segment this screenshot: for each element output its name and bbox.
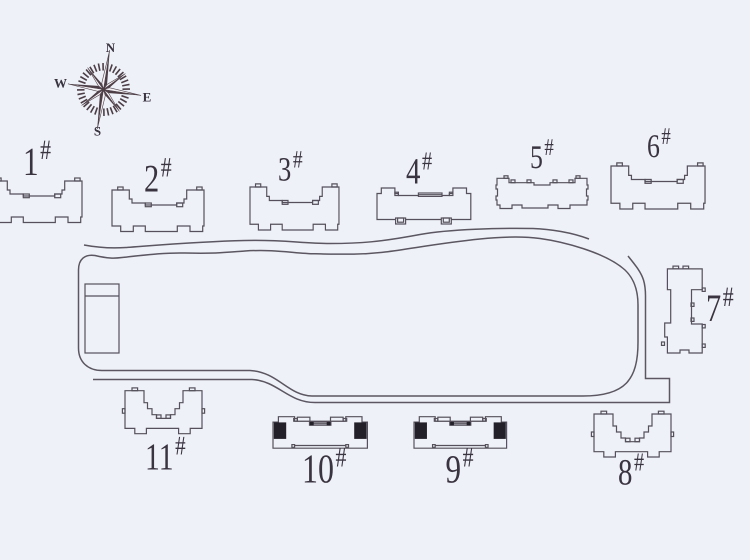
- svg-text:S: S: [94, 124, 101, 139]
- svg-text:W: W: [54, 76, 67, 91]
- svg-text:N: N: [106, 40, 116, 55]
- svg-text:E: E: [143, 90, 152, 105]
